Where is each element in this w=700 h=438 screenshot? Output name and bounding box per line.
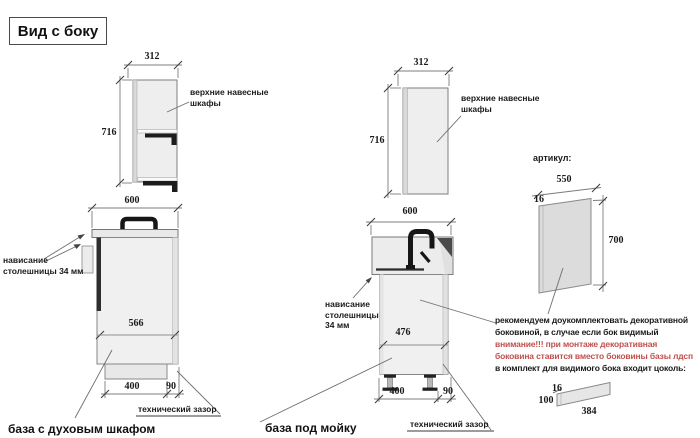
caption-sink-base: база под мойку — [265, 421, 357, 435]
note-line-5: в комплект для видимого бока входит цоко… — [495, 363, 686, 373]
dim-panel-width: 550 — [557, 174, 572, 185]
side-view-drawing-sheet: Вид с боку 312 716 верхние навесные шкаф… — [0, 0, 700, 438]
oven-base-cabinet-shape — [82, 219, 178, 379]
dim-plinth-length: 384 — [582, 406, 597, 417]
middle-upper-cabinet-shape — [403, 88, 448, 194]
dim-left-upper-height: 716 — [102, 127, 117, 138]
dim-plinth-height: 100 — [539, 395, 554, 406]
dim-left-upper-width: 312 — [145, 51, 160, 62]
dim-left-base-inner: 566 — [129, 318, 144, 329]
oven-door-strip — [97, 238, 102, 312]
note-line-1: рекомендуем доукомплектовать декоративно… — [495, 315, 688, 325]
dim-mid-base-width: 600 — [403, 206, 418, 217]
sink-base-cabinet-shape — [372, 232, 453, 391]
caption-oven-base: база с духовым шкафом — [8, 422, 155, 436]
label-mid-technical-gap: технический зазор — [410, 419, 489, 430]
label-left-overhang: нависание столешницы 34 мм — [3, 255, 83, 276]
label-mid-upper-cabinet: верхние навесные шкафы — [461, 93, 540, 114]
dim-mid-upper-width: 312 — [414, 57, 429, 68]
label-article-heading: артикул: — [533, 153, 571, 164]
note-line-4: боковина ставится вместо боковины базы л… — [495, 351, 693, 361]
left-upper-cabinet-shape — [133, 80, 178, 192]
note-line-2: боковиной, в случае если бок видимый — [495, 327, 658, 337]
note-line-3: внимание!!! при монтаже декоративная — [495, 339, 657, 349]
page-title: Вид с боку — [9, 17, 107, 45]
dim-panel-height: 700 — [609, 235, 624, 246]
dim-panel-thickness: 16 — [534, 194, 544, 205]
handle-icon — [123, 219, 156, 230]
dim-mid-base-inner: 476 — [396, 327, 411, 338]
dim-left-base-width: 600 — [125, 195, 140, 206]
dim-mid-base-gap: 90 — [443, 386, 453, 397]
dim-left-base-plinth: 400 — [125, 381, 140, 392]
decorative-side-panel-shape — [539, 199, 591, 294]
label-left-technical-gap: технический зазор — [138, 404, 217, 415]
dim-mid-base-plinth: 400 — [390, 386, 405, 397]
oven-handle-icon — [82, 246, 93, 273]
dim-mid-upper-height: 716 — [370, 135, 385, 146]
label-mid-overhang: нависание столешницы 34 мм — [325, 299, 379, 331]
plinth-shape — [105, 364, 167, 379]
label-left-upper-cabinet: верхние навесные шкафы — [190, 87, 269, 108]
dim-plinth-thickness: 16 — [552, 383, 562, 394]
dim-left-base-gap: 90 — [166, 381, 176, 392]
adjustable-leg-icon — [423, 375, 438, 391]
